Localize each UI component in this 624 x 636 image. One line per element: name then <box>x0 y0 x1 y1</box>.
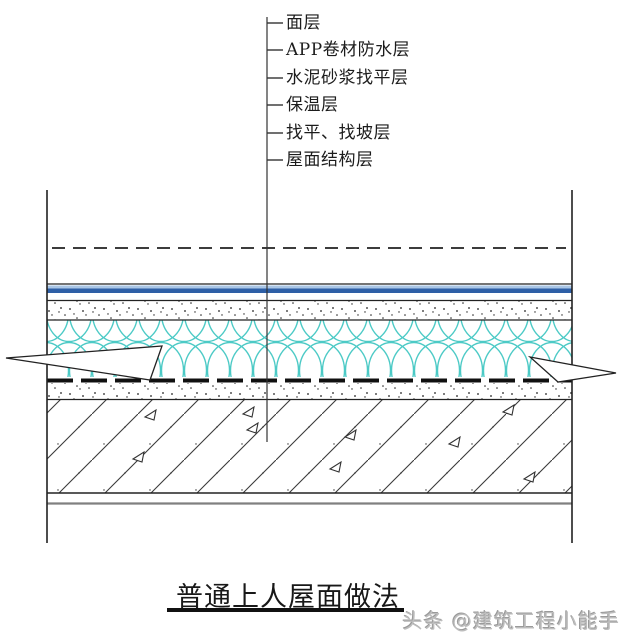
slope-speckle-band <box>47 383 572 399</box>
roof-detail-diagram: 面层 APP卷材防水层 水泥砂浆找平层 保温层 找平、找坡层 屋面结构层 普通上… <box>0 0 624 636</box>
layer-label-cement-leveling: 水泥砂浆找平层 <box>286 67 409 89</box>
membrane-dark-stripe <box>47 289 572 294</box>
layer-label-surface: 面层 <box>286 12 321 34</box>
layer-label-slope-leveling: 找平、找坡层 <box>286 122 391 144</box>
layer-label-structure: 屋面结构层 <box>286 149 374 171</box>
layer-label-insulation: 保温层 <box>286 94 339 116</box>
mortar-speckle-band <box>47 301 572 320</box>
slab-hatch-band <box>47 400 572 493</box>
watermark-text: 头条 @建筑工程小能手 <box>403 605 620 634</box>
title-underline <box>167 608 404 612</box>
layer-label-app-waterproof: APP卷材防水层 <box>286 39 410 61</box>
membrane-light-stripe <box>47 286 572 289</box>
